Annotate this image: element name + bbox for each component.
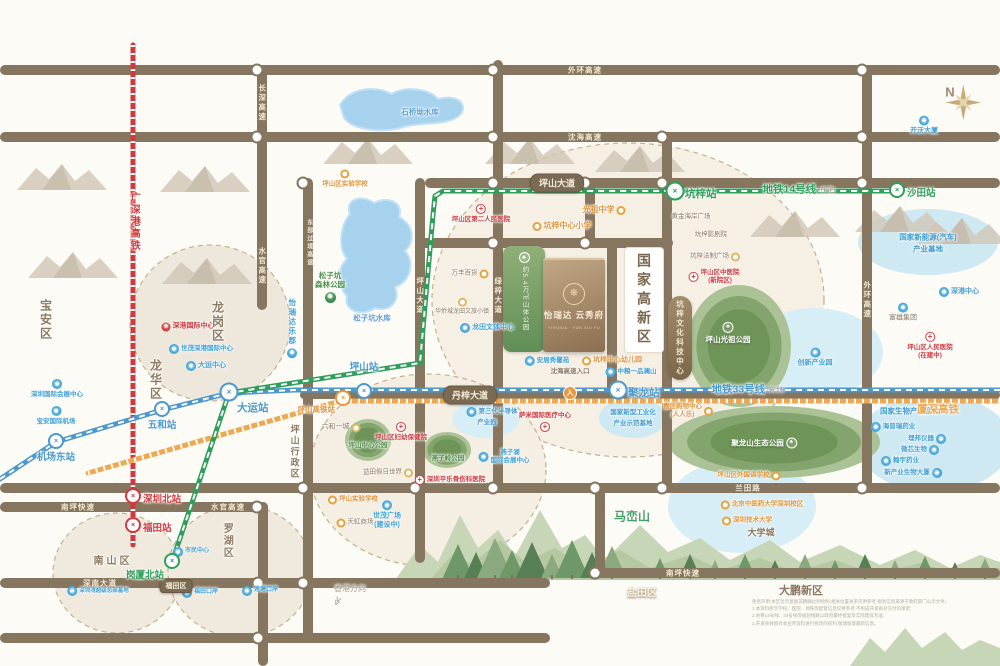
- poi-label-line: 莲塘口岸: [254, 587, 278, 595]
- poi-label: 宝安国际机场: [37, 418, 76, 426]
- poi-label-line: 坪山区外国语学校: [718, 472, 770, 480]
- map-poi: 怡瑞达乐郡◆: [287, 298, 297, 358]
- poi-label-line: 世茂深港国际中心: [181, 345, 233, 353]
- mall-icon: ◆: [467, 407, 477, 417]
- road-junction: [589, 567, 602, 580]
- poi-label-line: 光祖中学: [583, 205, 615, 215]
- map-poi: 松子坑水库: [353, 313, 391, 322]
- poi-label-line: 安居秀馨苑: [537, 357, 570, 365]
- poi-label-line: 万丰百货: [452, 270, 478, 278]
- map-poi: 益田假日世界: [363, 469, 413, 478]
- rail-line-label-text: 地铁14号线: [762, 183, 816, 196]
- road-label: 南坪快速: [61, 502, 95, 511]
- road: [595, 568, 1000, 578]
- poi-label: 深港中心: [951, 288, 979, 297]
- school-icon: [328, 496, 337, 505]
- poi-label: 坪山中心公园: [349, 442, 388, 450]
- road-junction: [487, 131, 500, 144]
- map-poi: ◆深港中心: [939, 287, 979, 297]
- road-label: 水官高速: [211, 502, 245, 511]
- road-label: 兰田路: [735, 483, 761, 492]
- station-label: 沙田站: [907, 185, 936, 199]
- poi-label-line: 国际会展中心: [491, 457, 530, 465]
- poi-label-line: 福田口岸: [194, 589, 218, 597]
- property-park-note: 约5.4万㎡山体公园: [519, 266, 529, 331]
- map-poi: 燕子岭公园: [432, 455, 465, 463]
- map-poi: ◆海普瑞药业: [871, 422, 916, 432]
- poi-label: 聚龙山生态公园: [731, 438, 784, 447]
- station-label: 福田站: [143, 520, 172, 534]
- poi-label: 市民中心: [185, 548, 209, 556]
- road-junction: [589, 482, 602, 495]
- poi-label-line: (在建中): [918, 352, 942, 360]
- station-icon: ×: [666, 182, 685, 201]
- poi-label: 天虹商场: [348, 519, 374, 527]
- map-poi: ♣坪山光祖公园: [706, 322, 751, 344]
- road-junction: [487, 237, 500, 250]
- road-label: 外环高速: [568, 65, 602, 74]
- mall-icon: ◆: [169, 344, 179, 354]
- poi-label-line: 海普瑞药业: [883, 423, 916, 431]
- poi-label-line: 聚龙山生态公园: [731, 438, 784, 447]
- poi-label-line: 香港方向: [334, 584, 366, 594]
- road-label-text: 水官高速: [211, 502, 245, 511]
- poi-label: 坑梓中心幼儿园: [593, 357, 642, 366]
- redstar-icon: ★: [162, 323, 171, 332]
- road-junction: [656, 131, 669, 144]
- mall-icon: ◆: [51, 406, 61, 416]
- road-label-text: 南坪快速: [61, 502, 95, 511]
- road-label-text: 绿梓大道: [493, 277, 502, 315]
- map-poi: ◆大运中心: [186, 361, 226, 371]
- hosp-icon: +: [925, 332, 935, 342]
- property-main-box: ❋ 怡瑞达 云秀府 YIRUIDA · YUN XIU FU: [543, 258, 605, 352]
- road-junction: [656, 482, 669, 495]
- poi-label: 坪山区中医院(新院区): [701, 269, 740, 285]
- hosp-icon: +: [415, 475, 425, 485]
- property-logo-icon: ❋: [563, 283, 585, 305]
- map-poi: 石桥坳水库: [401, 107, 439, 116]
- futian-area: [168, 505, 312, 637]
- culture-tech-center-label: 坑梓文化科技中心: [675, 300, 686, 376]
- poi-label-line: 马峦山: [614, 510, 650, 525]
- station-label: 沈海高速入口: [551, 365, 590, 375]
- poi-label: 世茂深港国际中心: [181, 345, 233, 353]
- spot-icon: [404, 469, 413, 478]
- mall-icon: ◆: [67, 586, 77, 596]
- road-label: 东部过境高速: [304, 219, 312, 267]
- hosp-icon: +: [476, 204, 486, 214]
- map-poi: +坪山区妇幼保健院: [375, 422, 427, 442]
- poi-label-line: 中粮一品澜山: [618, 368, 657, 376]
- poi-label: 大学城: [747, 527, 774, 538]
- poi-label-line: 坑梓法制广场: [690, 253, 729, 261]
- map-poi: ◆莲塘口岸: [242, 586, 278, 596]
- disclaimer-line: 免责声明:本区位示意图非精确比例绘制,相关位置关系仅供参考,规划信息来源于政府部…: [752, 598, 998, 605]
- station-icon: ×: [48, 433, 64, 449]
- map-poi: 大鹏新区: [779, 585, 823, 599]
- poi-label: 产业园: [477, 419, 497, 427]
- compass-star-icon: [945, 85, 981, 121]
- poi-label-line: 华侨城龙田文旅小镇: [435, 309, 489, 317]
- road-label-text: 兰田路: [735, 483, 761, 492]
- road-label-text: 长深高速: [257, 84, 266, 122]
- poi-label-line: 深港中心: [951, 288, 979, 297]
- map-poi: ◆翰宇药业: [881, 456, 919, 466]
- road-badge: 福田区: [160, 579, 193, 593]
- poi-label: 国家新能源(汽车): [899, 232, 957, 241]
- road-junction: [487, 177, 500, 190]
- map-poi: 光祖中学: [583, 205, 626, 215]
- poi-label-line: 深圳湾超级总部基地: [79, 588, 129, 595]
- poi-label-line: 坪山区人民医院: [907, 344, 953, 352]
- poi-label-line: 第三代半导体: [479, 408, 518, 416]
- map-poi: 松子坑森林公园♣: [315, 271, 345, 303]
- highway-entrance-icon: 入: [563, 386, 577, 400]
- poi-label-line: 国家新能源(汽车): [899, 232, 957, 241]
- disclaimer-line: 3.开发商保留对本宣传资料进行修改的权利,敬请留意最新信息。: [752, 620, 998, 627]
- road-junction: [297, 577, 310, 590]
- mall-icon: ◆: [242, 586, 252, 596]
- poi-label: 福田口岸: [194, 589, 218, 597]
- road-label-text: 沈海高速: [568, 132, 602, 141]
- road-label: 绿梓大道: [493, 277, 502, 315]
- map-poi: 宝安区: [38, 299, 53, 341]
- hosp-icon: +: [396, 422, 406, 432]
- mall-icon: ◆: [871, 422, 881, 432]
- ptree-icon: ♣: [723, 322, 734, 333]
- poi-label: 深圳国际会展中心: [31, 391, 83, 399]
- map-poi: 微芯生物◆: [901, 445, 939, 455]
- map-poi: 大学城: [747, 527, 774, 538]
- map-poi: 万丰百货: [452, 270, 489, 279]
- map-poi: ◆燕子湖国际会展中心: [479, 449, 530, 465]
- poi-label-line: 国家新型工业化: [610, 409, 656, 417]
- map-poi: +坪山区人民医院(在建中): [907, 332, 953, 360]
- school-icon: [533, 222, 542, 231]
- rail-line-status-tag: (规划): [767, 386, 784, 394]
- road-junction: [297, 482, 310, 495]
- poi-label-line: 市民中心: [185, 548, 209, 556]
- poi-label: 罗湖区: [220, 523, 233, 559]
- disclaimer-text: 免责声明:本区位示意图非精确比例绘制,相关位置关系仅供参考,规划信息来源于政府部…: [752, 598, 998, 627]
- road-junction: [251, 501, 264, 514]
- road-label-text: 东部过境高速: [304, 219, 312, 267]
- poi-label-line: 坪山区妇幼保健院: [375, 434, 427, 442]
- poi-label: 开沃大厦: [910, 128, 938, 137]
- station-label: 大运站: [237, 400, 269, 415]
- poi-label: 香港方向: [334, 584, 366, 594]
- poi-label-line: 燕子湖: [500, 449, 520, 457]
- road-junction: [252, 632, 265, 645]
- poi-label: 莲塘口岸: [254, 587, 278, 595]
- poi-label-line: 黄金海岸广场: [672, 213, 711, 221]
- spot-icon: [352, 424, 361, 433]
- compass: N: [945, 85, 954, 100]
- road-junction: [487, 482, 500, 495]
- poi-label: 新产业生物大厦: [884, 469, 930, 477]
- poi-label: 怡瑞达乐郡: [287, 298, 296, 346]
- station-label: 岗厦北站: [126, 567, 164, 581]
- road-label: 坪山大道: [415, 277, 424, 315]
- map-poi: 萨米国际医疗中心+: [519, 412, 571, 432]
- poi-label: 龙岗区: [210, 301, 225, 343]
- station-icon: ×: [154, 401, 170, 417]
- poi-label: 国家新型工业化: [610, 409, 656, 417]
- station-icon: ×: [220, 383, 239, 402]
- poi-label-line: 深港国际中心: [173, 323, 215, 332]
- road-junction: [856, 64, 869, 77]
- poi-label: 马峦山: [614, 510, 650, 525]
- poi-label-line: 嘉信购物中心: [663, 403, 702, 411]
- rail-line-label: 地铁14号线(在建): [762, 183, 835, 196]
- poi-label-line: 翰宇药业: [893, 457, 919, 465]
- mall-icon: ◆: [606, 367, 616, 377]
- poi-label: 坑梓影剧院: [695, 231, 728, 239]
- map-poi: 香港方向: [334, 584, 366, 594]
- station-label: 五和站: [148, 417, 177, 431]
- poi-label: 龙华区: [148, 359, 163, 401]
- poi-label-line: 深圳技术大学: [733, 517, 772, 525]
- hosp-icon: +: [689, 272, 699, 282]
- poi-label-line: 产业园: [477, 419, 497, 427]
- poi-label-line: 世茂广场: [373, 512, 401, 521]
- poi-label: 坪山区人民医院(在建中): [907, 344, 953, 360]
- map-poi: 龙岗区: [210, 301, 225, 343]
- poi-label-line: 产业示范基地: [614, 420, 653, 428]
- station-icon: ×: [125, 488, 141, 504]
- property-park-strip: ♣ 约5.4万㎡山体公园: [503, 246, 545, 352]
- mall-icon: ◆: [919, 116, 929, 126]
- poi-label-line: 益田假日世界: [363, 469, 402, 477]
- property-card: ♣ 约5.4万㎡山体公园 ❋ 怡瑞达 云秀府 YIRUIDA · YUN XIU…: [503, 244, 607, 356]
- poi-label: 石桥坳水库: [401, 107, 439, 116]
- mall-icon: ◆: [939, 287, 949, 297]
- map-poi: 坪山行政区: [288, 425, 299, 480]
- station-label: 坪山站: [350, 359, 379, 373]
- poi-label: 坪山区第二人民医院: [452, 216, 511, 224]
- poi-label-line: 坪山区第二人民医院: [452, 216, 511, 224]
- poi-label-line: 坪山实验学校: [339, 496, 378, 504]
- poi-label-line: 北京中医药大学深圳校区: [732, 501, 804, 509]
- poi-label-line: 坪山中心公园: [349, 442, 388, 450]
- poi-label-line: 天虹商场: [348, 519, 374, 527]
- poi-label: 坪山行政区: [288, 425, 299, 480]
- poi-label-line: 龙华区: [148, 359, 163, 401]
- poi-label: 坑梓法制广场: [690, 253, 729, 261]
- map-poi: ◆中粮一品澜山: [606, 367, 657, 377]
- station-label: 坪山高铁站: [298, 404, 336, 415]
- spot-icon: [731, 253, 740, 262]
- map-poi: ★深港国际中心: [162, 323, 215, 332]
- road-junction: [856, 177, 869, 190]
- map-poi: 坪山实验学校: [328, 496, 378, 505]
- poi-label: 微芯生物: [901, 446, 927, 454]
- ptree-icon: ♣: [786, 438, 797, 449]
- poi-label-line: 龙田文体中心: [472, 324, 514, 333]
- poi-label-line: 坑梓中心小学: [544, 221, 592, 231]
- poi-label: 宝安区: [38, 299, 53, 341]
- poi-label-line: 微芯生物: [901, 446, 927, 454]
- poi-label-line: 森林公园: [315, 281, 345, 290]
- poi-label: 中粮一品澜山: [618, 368, 657, 376]
- map-poi: 坑梓法制广场: [690, 253, 740, 262]
- poi-label-line: 坪山区实验学校: [322, 180, 368, 188]
- poi-label: 北京中医药大学深圳校区: [732, 501, 804, 509]
- rail-line-label: 厦深高铁: [917, 403, 959, 416]
- road-label-text: 水官高速: [257, 247, 266, 285]
- poi-label: 坪山区实验学校: [322, 180, 368, 188]
- tree-icon: ♣: [519, 252, 530, 263]
- poi-label: 产业基地: [913, 244, 943, 253]
- poi-label: 益田假日世界: [363, 469, 402, 477]
- hightech-zone-label: 国家高新区: [634, 253, 654, 348]
- poi-label-line: 石桥坳水库: [401, 107, 439, 116]
- road-label: 水官高速: [257, 247, 266, 285]
- poi-label: 翰宇药业: [893, 457, 919, 465]
- poi-label-line: 产业基地: [913, 244, 943, 253]
- rail-line-label: 地铁33号线(规划): [711, 383, 784, 396]
- poi-label: 万丰百货: [452, 270, 478, 278]
- school-icon: [337, 519, 346, 528]
- map-poi: 天虹商场: [337, 519, 374, 528]
- map-poi: ◆宝安国际机场: [37, 406, 76, 426]
- map-poi: ◆第三代半导体: [467, 407, 518, 417]
- map-poi: 盐田区: [627, 588, 657, 601]
- poi-label: 松子坑森林公园: [315, 271, 345, 290]
- poi-label-line: 新产业生物大厦: [884, 469, 930, 477]
- poi-label: 深圳平乐骨伤科医院: [427, 476, 486, 484]
- station-icon: ×: [609, 381, 628, 400]
- poi-label: 世茂广场(建设中): [373, 512, 401, 530]
- poi-label-line: 坑梓影剧院: [695, 231, 728, 239]
- poi-label: 萨米国际医疗中心: [519, 412, 571, 420]
- mall-icon: ◆: [929, 445, 939, 455]
- map-poi: 聚龙山生态公园♣: [731, 438, 797, 449]
- map-poi: 产业园: [477, 419, 497, 427]
- map-poi: 黄金海岸广场: [672, 213, 711, 221]
- mall-icon: ◆: [936, 434, 946, 444]
- road-label-text: 外环高速: [862, 281, 871, 319]
- station-icon: ×: [356, 383, 372, 399]
- map-poi: 产业基地: [913, 244, 943, 253]
- culture-tech-center-box: 坑梓文化科技中心: [668, 296, 692, 380]
- poi-label: 坪山实验学校: [339, 496, 378, 504]
- road: [415, 178, 425, 563]
- poi-label: 盐田区: [627, 588, 657, 601]
- road-label-text: 南坪快速: [666, 568, 700, 577]
- poi-label-line: 深圳平乐骨伤科医院: [427, 476, 486, 484]
- poi-label-line: 开沃大厦: [910, 128, 938, 137]
- mall-icon: ◆: [460, 323, 470, 333]
- poi-label: 深圳湾超级总部基地: [79, 588, 129, 595]
- map-poi: 产业示范基地: [614, 420, 653, 428]
- road-label: 长深高速: [257, 84, 266, 122]
- rail-line-label-text: 地铁33号线: [711, 383, 765, 396]
- school-icon: [721, 501, 730, 510]
- rail-line-label-text: 广深港高铁: [127, 192, 140, 252]
- hosp-icon: +: [540, 422, 550, 432]
- poi-label: 嘉信购物中心(人人乐): [663, 403, 702, 419]
- poi-label-line: 怡瑞达乐郡: [287, 298, 296, 346]
- map-poi: 华侨城龙田文旅小镇: [435, 298, 489, 317]
- school-icon: [722, 517, 731, 526]
- road-junction: [251, 64, 264, 77]
- station-label: 坑梓站: [685, 186, 717, 201]
- poi-label-line: 大鹏新区: [779, 585, 823, 599]
- poi-label-line: 坪山光祖公园: [706, 335, 751, 344]
- poi-label: 松子坑水库: [353, 313, 391, 322]
- road: [0, 633, 550, 643]
- poi-label-line: 坑梓中心幼儿园: [593, 357, 642, 366]
- mall-icon: ◆: [898, 303, 908, 313]
- songzikeng-reservoir: [340, 199, 412, 313]
- map-poi: 深圳技术大学: [722, 517, 772, 526]
- station-label: 深圳北站: [143, 491, 181, 505]
- poi-label: 创新产业园: [798, 360, 833, 369]
- school-icon: [617, 206, 626, 215]
- poi-label: 海普瑞药业: [883, 423, 916, 431]
- map-poi: 嘉信购物中心(人人乐): [663, 403, 713, 419]
- poi-label-line: 六和一城: [322, 424, 350, 433]
- poi-label-line: 坪山行政区: [288, 425, 299, 480]
- map-poi: 六和一城: [322, 424, 361, 433]
- map-poi: 坑梓中心幼儿园: [582, 357, 642, 366]
- property-name-en: YIRUIDA · YUN XIU FU: [548, 325, 600, 330]
- poi-label: 坪山区妇幼保健院: [375, 434, 427, 442]
- poi-label: 燕子湖国际会展中心: [491, 449, 530, 465]
- map-poi: 国家新型工业化: [610, 409, 656, 417]
- school-icon: [341, 169, 350, 178]
- map-poi: 罗湖区: [220, 523, 233, 559]
- disclaimer-line: 1.本资料所示学校、医院、地铁等配套信息仅供参考,不构成开发商对交付的承诺;: [752, 605, 998, 612]
- mall-icon: ◆: [52, 379, 62, 389]
- station-icon: ×: [125, 517, 141, 533]
- map-poi: ◆富雄集团: [889, 303, 917, 324]
- poi-label: 坪山区外国语学校: [718, 472, 770, 480]
- poi-label: 第三代半导体: [479, 408, 518, 416]
- poi-label: 富雄集团: [889, 315, 917, 324]
- map-poi: 坪山区外国语学校: [718, 472, 781, 481]
- mall-icon: ◆: [186, 361, 196, 371]
- road-junction: [251, 131, 264, 144]
- poi-label: 深港国际中心: [173, 323, 215, 332]
- poi-label-line: (建设中): [374, 521, 400, 530]
- road-badge: 坪山大道: [530, 174, 584, 193]
- map-poi: 马峦山: [614, 510, 650, 525]
- road-badge: 丹梓大道: [443, 386, 497, 405]
- poi-label: 华侨城龙田文旅小镇: [435, 309, 489, 317]
- rail-line-label: 广深港高铁: [127, 192, 140, 252]
- poi-label: 坑梓中心小学: [544, 221, 592, 231]
- road-junction: [856, 482, 869, 495]
- road-label: 南坪快速: [666, 568, 700, 577]
- poi-label: 大运中心: [198, 362, 226, 371]
- map-poi: +深圳平乐骨伤科医院: [415, 475, 486, 485]
- school-icon: [772, 472, 781, 481]
- poi-label-line: 深圳国际会展中心: [31, 391, 83, 399]
- mall-icon: ◆: [932, 468, 942, 478]
- poi-label-line: 理邦仪器: [908, 435, 934, 443]
- poi-label-line: 松子坑: [319, 271, 342, 280]
- map-poi: ◆世茂广场(建设中): [373, 500, 401, 530]
- road: [595, 483, 605, 573]
- road-label: 外环高速: [862, 281, 871, 319]
- poi-label: 产业示范基地: [614, 420, 653, 428]
- map-poi: ◆深圳国际会展中心: [31, 379, 83, 399]
- station-icon: ×: [335, 390, 351, 406]
- poi-label-line: 萨米国际医疗中心: [519, 412, 571, 420]
